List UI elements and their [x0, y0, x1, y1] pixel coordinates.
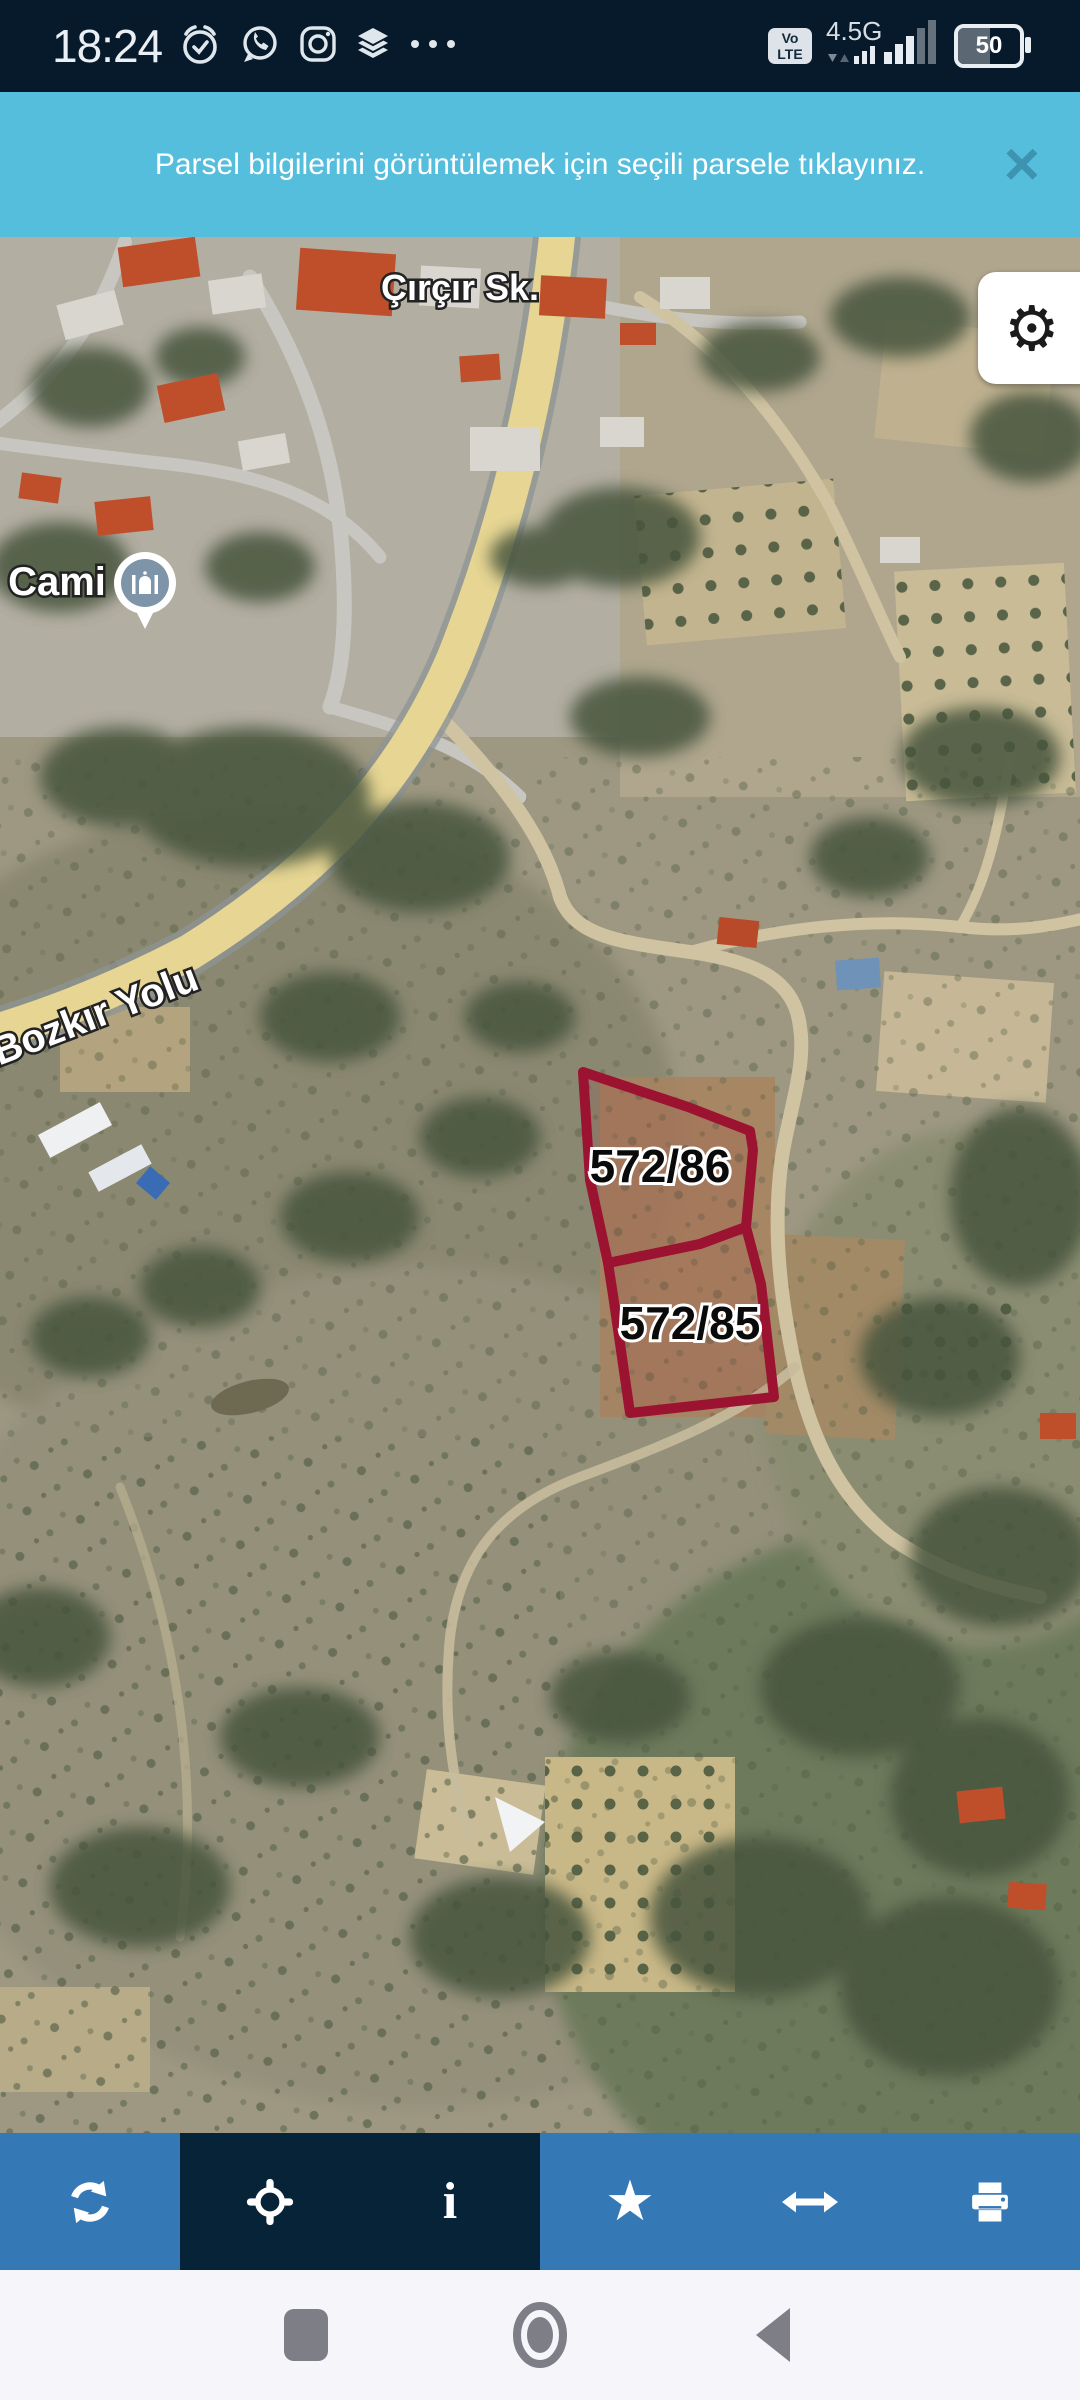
refresh-button[interactable] [0, 2133, 180, 2270]
favorite-button[interactable]: ★ [540, 2133, 720, 2270]
info-icon: i [443, 2172, 457, 2231]
left-right-arrow-icon [782, 2182, 838, 2222]
settings-button[interactable]: ⚙ [978, 272, 1080, 384]
star-icon: ★ [605, 2174, 655, 2230]
crosshair-icon [244, 2176, 296, 2228]
battery-percent: 50 [976, 32, 1003, 60]
gear-icon: ⚙ [1004, 292, 1060, 365]
more-notifications-icon [407, 34, 459, 59]
close-icon[interactable]: × [994, 134, 1050, 196]
whatsapp-icon [238, 22, 282, 71]
layers-icon [354, 25, 392, 68]
info-button[interactable]: i [360, 2133, 540, 2270]
poi-label: Cami [8, 560, 106, 604]
measure-button[interactable] [720, 2133, 900, 2270]
network-type-label: 4.5G [826, 16, 882, 46]
volte-badge: VoLTE [768, 28, 812, 64]
info-banner: Parsel bilgilerini görüntülemek için seç… [0, 92, 1080, 237]
recents-button[interactable] [226, 2270, 386, 2400]
clock-time: 18:24 [52, 19, 162, 73]
street-label: Çırçır Sk. [381, 267, 539, 308]
home-circle-icon [512, 2301, 568, 2369]
refresh-icon [64, 2176, 116, 2228]
banner-message: Parsel bilgilerini görüntülemek için seç… [155, 148, 925, 182]
locate-button[interactable] [180, 2133, 360, 2270]
print-button[interactable] [900, 2133, 1080, 2270]
map-canvas[interactable]: Çırçır Sk. Cami Bozkır Yolu 572/86 572/8… [0, 237, 1080, 2133]
back-triangle-icon [750, 2304, 794, 2366]
instagram-icon [297, 23, 339, 70]
status-bar: 18:24 [0, 0, 1080, 92]
alarm-icon [177, 21, 223, 72]
parcel-label-572-85: 572/85 [620, 1297, 761, 1349]
bottom-toolbar: i ★ [0, 2133, 1080, 2270]
home-button[interactable] [460, 2270, 620, 2400]
printer-icon [964, 2176, 1016, 2228]
satellite-map: Çırçır Sk. Cami Bozkır Yolu 572/86 572/8… [0, 237, 1080, 2133]
recents-square-icon [282, 2307, 330, 2363]
back-button[interactable] [692, 2270, 852, 2400]
parcel-label-572-86: 572/86 [590, 1140, 731, 1192]
battery-indicator: 50 [954, 24, 1024, 68]
android-nav-bar [0, 2270, 1080, 2400]
signal-icon: 4.5G [824, 16, 942, 76]
